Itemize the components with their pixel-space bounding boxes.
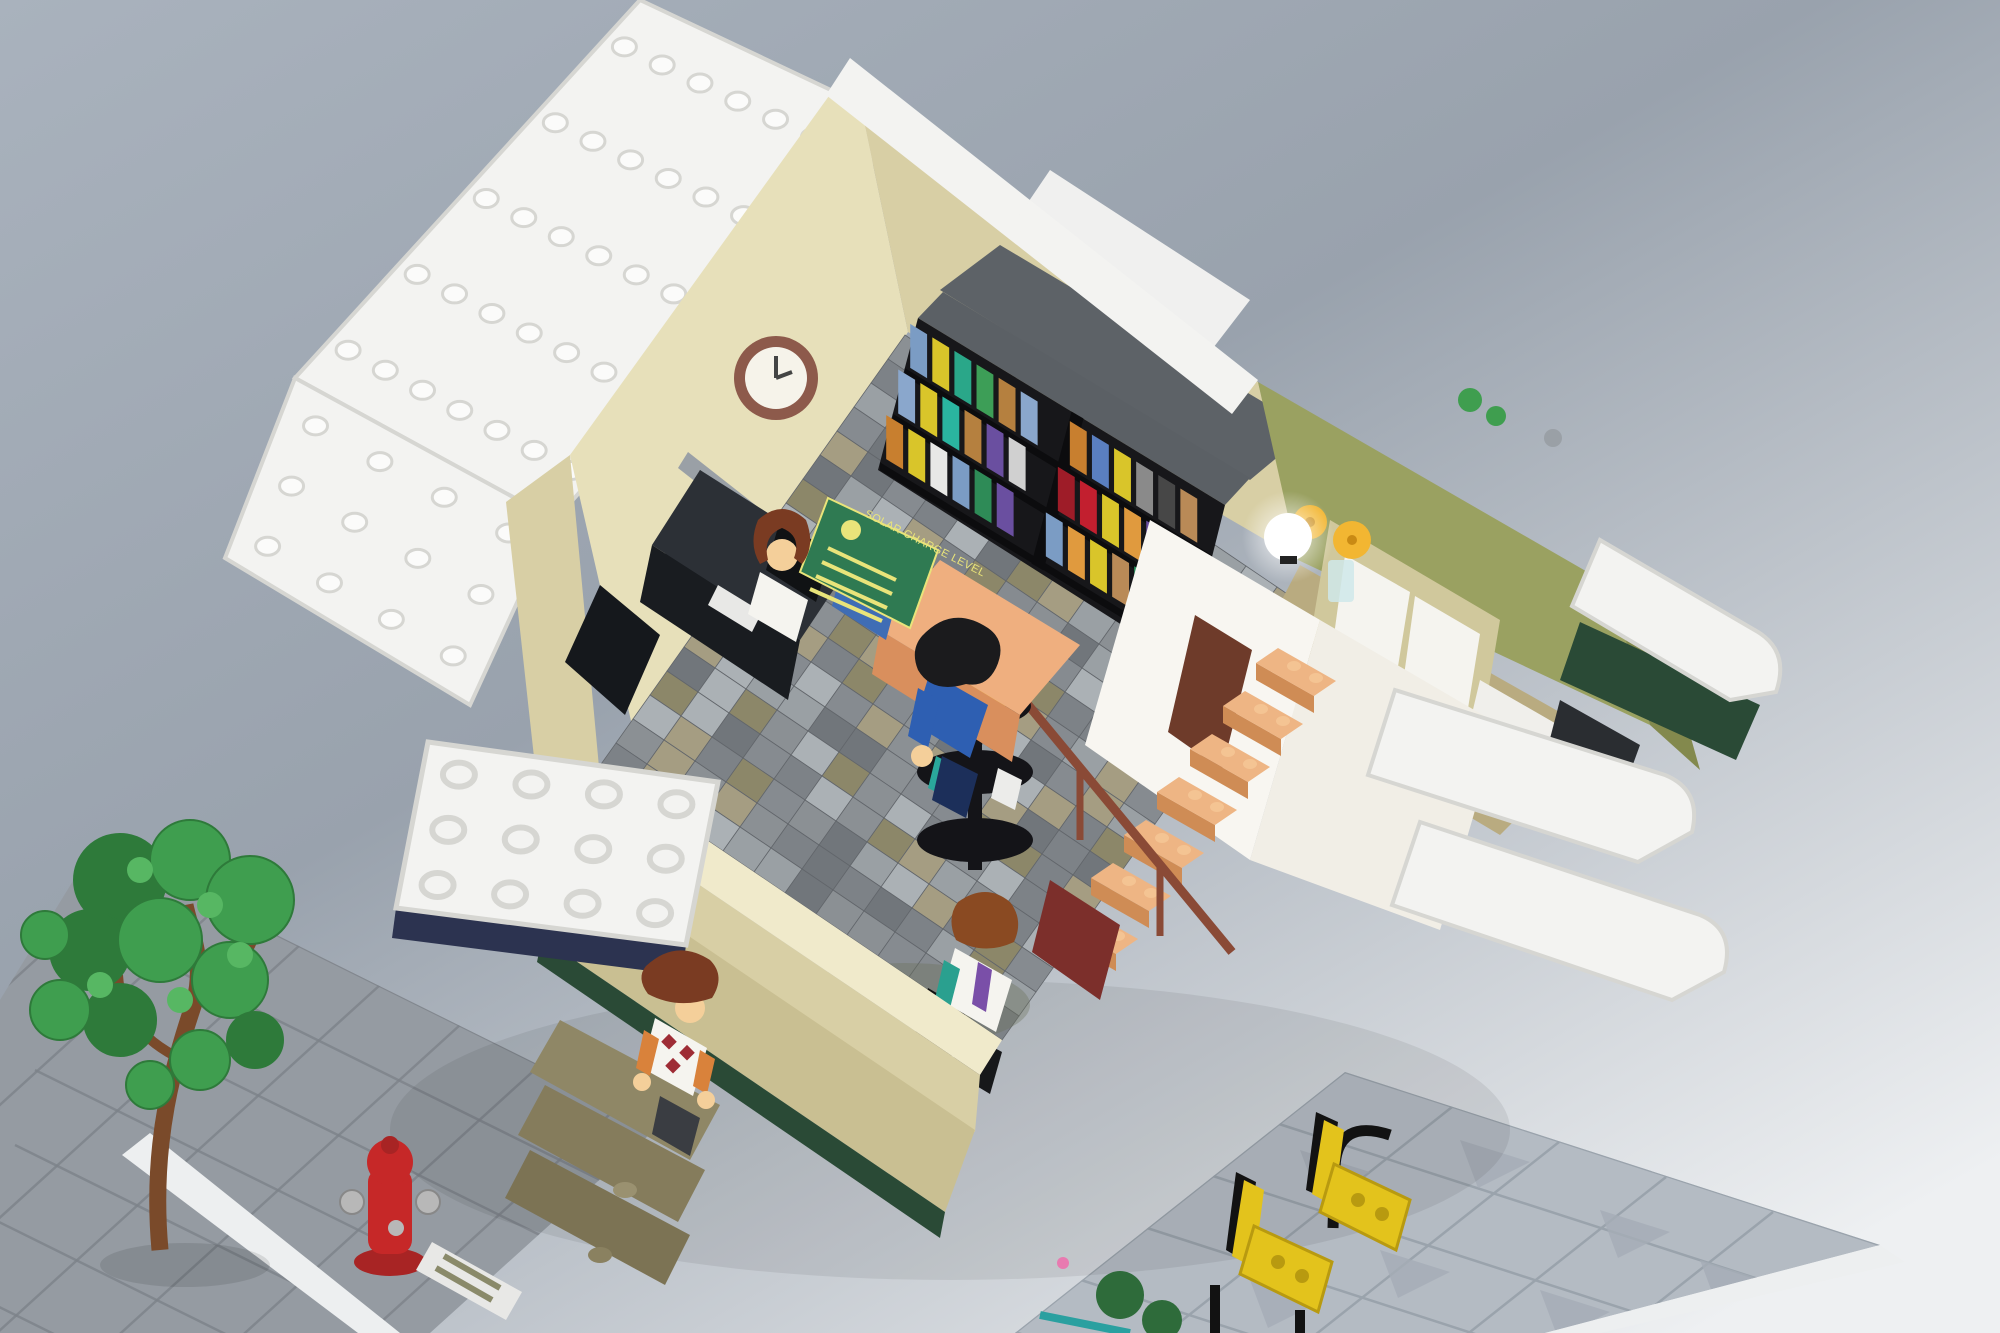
roof-stud [443,285,467,303]
sun-icon [841,520,861,540]
roof-stud [650,56,674,74]
clerk-head [766,539,798,571]
roof-stud [624,266,648,284]
roof-stud [317,574,341,592]
roof-stud [587,247,611,265]
roof-stud [304,417,328,435]
roof-stud [474,190,498,208]
wall-clock [734,336,818,420]
bush-1 [1096,1271,1144,1319]
tree-foliage-highlight [87,972,113,998]
roof-stud [694,188,718,206]
roof-stud [612,38,636,56]
roof-stud [405,265,429,283]
stair-stud [1309,673,1323,683]
lamp-base [1280,556,1297,564]
roof-stud [619,151,643,169]
steps-fig-hand-left [633,1073,651,1091]
stair-stud [1210,802,1224,812]
roof-stud [280,477,304,495]
roof-stud [512,209,536,227]
roof-stud [592,363,616,381]
hydrant-top-cap [381,1136,399,1154]
tree-shadow [100,1243,270,1287]
roof-stud [336,341,360,359]
step-stud-2 [588,1247,612,1263]
flower-center-2 [1347,535,1357,545]
roof-stud [406,549,430,567]
hydrant-cap-right [416,1190,440,1214]
roof-stud [441,647,465,665]
chair-1-stud-2 [1295,1269,1309,1283]
roof-stud [764,110,788,128]
tree-foliage [227,1012,283,1068]
tree-foliage-highlight [127,857,153,883]
tree-foliage-highlight [227,942,253,968]
roof-stud [343,513,367,531]
roof-stud [368,453,392,471]
roof-stud [517,324,541,342]
roof-stud [726,92,750,110]
render-canvas: SOLAR CHARGE LEVEL [0,0,2000,1333]
tree-foliage [21,911,69,959]
hydrant-cap-left [340,1190,364,1214]
tree-foliage-highlight [197,892,223,918]
step-stud-1 [613,1182,637,1198]
roof-stud [469,585,493,603]
stair-stud [1276,716,1290,726]
stair-stud [1243,759,1257,769]
roof-stud [581,132,605,150]
roof-stud [656,169,680,187]
pink-flower [1057,1257,1069,1269]
globe-lamp [1264,513,1312,561]
roof-stud [688,74,712,92]
roof-plant-1 [1458,388,1482,412]
roof-stud [522,441,546,459]
chair-2-stud [1351,1193,1365,1207]
roof-stud [480,304,504,322]
tree-foliage [170,1030,230,1090]
roof-stud [379,610,403,628]
stair-stud [1122,876,1136,886]
stair-stud [1254,704,1268,714]
chair-2-stud-2 [1375,1207,1389,1221]
spinner-tier-3 [917,818,1033,862]
roof-stud [485,421,509,439]
stair-stud [1188,790,1202,800]
roof-stud [555,344,579,362]
roof-pin-piece [1544,429,1562,447]
roof-plant-2 [1486,406,1506,426]
stair-stud [1287,661,1301,671]
tree-foliage [30,980,90,1040]
stair-stud [1221,747,1235,757]
steps-fig-hand-right [697,1091,715,1109]
roof-stud [549,228,573,246]
roof-stud [373,361,397,379]
stair-stud [1144,888,1158,898]
stair-stud [1177,845,1191,855]
roof-stud [256,537,280,555]
flower-vase [1328,560,1354,602]
hydrant-cap-front [388,1220,404,1236]
stair-stud [1155,833,1169,843]
roof-stud [432,488,456,506]
customer-hand [911,745,933,767]
chair-1-stud [1271,1255,1285,1269]
roof-stud [543,114,567,132]
tree-foliage-highlight [167,987,193,1013]
entry-awning [392,742,718,975]
roof-stud [448,401,472,419]
tree-foliage [126,1061,174,1109]
lego-render-scene: SOLAR CHARGE LEVEL [0,0,2000,1333]
roof-stud [411,381,435,399]
tree-foliage [118,898,202,982]
